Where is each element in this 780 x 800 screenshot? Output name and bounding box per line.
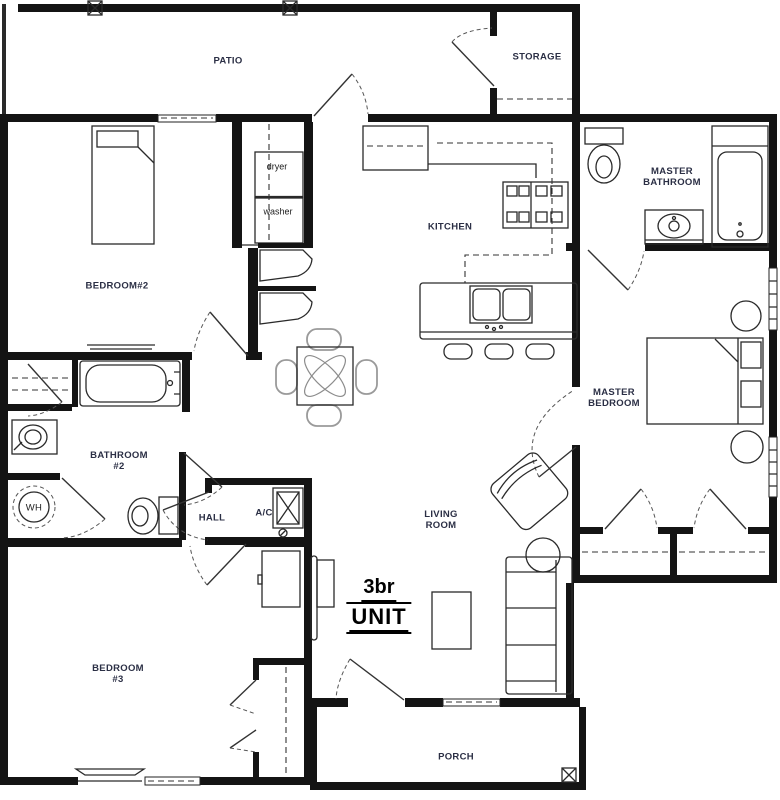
patio-kitchen-door <box>314 74 368 116</box>
ac-unit-icon <box>273 488 303 537</box>
pantry-shelves-icon <box>258 243 316 324</box>
master-bathroom-door <box>588 250 644 290</box>
toilet-icon <box>585 128 623 183</box>
label-hall: HALL <box>199 513 226 524</box>
washer-icon <box>255 198 303 243</box>
master-closet-door-left <box>605 489 657 529</box>
storage-walls <box>490 12 580 114</box>
bar-stool-icon <box>444 344 472 359</box>
label-porch: PORCH <box>438 752 474 763</box>
label-storage: STORAGE <box>513 52 562 63</box>
bedroom3-closet-bifold <box>230 680 256 752</box>
label-master-bathroom: MASTER BATHROOM <box>643 166 701 188</box>
unit-title: 3br UNIT <box>346 574 411 634</box>
pillow-icon <box>741 342 761 368</box>
label-patio: PATIO <box>213 56 242 67</box>
dining-table-icon <box>297 347 353 405</box>
window-bedroom3-1 <box>76 769 144 785</box>
label-washer: washer <box>263 207 292 218</box>
label-bathroom2: BATHROOM #2 <box>90 450 148 472</box>
porch-post-icon <box>562 768 576 782</box>
side-table-icon <box>526 538 560 572</box>
double-sink-icon <box>470 286 532 323</box>
toilet-icon <box>128 497 178 534</box>
dining-set-icon <box>276 329 377 426</box>
sofa-icon <box>506 557 572 694</box>
armchair-icon <box>488 450 571 533</box>
window-patio-wall <box>158 115 216 122</box>
nightstand-icon <box>731 301 761 331</box>
tub-shower-icon <box>712 126 768 247</box>
master-bed-icon <box>647 338 763 424</box>
window-bedroom3-2 <box>145 777 200 785</box>
hall-furniture <box>258 551 334 640</box>
label-wh: WH <box>26 503 42 514</box>
vanity-sink-icon <box>645 210 703 244</box>
counter-edge <box>428 164 536 178</box>
nightstand-icon <box>731 431 763 463</box>
label-dryer: dryer <box>267 162 288 173</box>
refrigerator-icon <box>363 126 428 170</box>
bedroom2-door <box>194 312 248 356</box>
master-closet-door-right <box>694 489 746 529</box>
kitchen-island <box>420 283 577 359</box>
window-master-right-1 <box>769 268 777 330</box>
ac-closet-fixtures <box>273 488 303 537</box>
front-door <box>336 659 404 700</box>
bar-stool-icon <box>526 344 554 359</box>
bar-stool-icon <box>485 344 513 359</box>
window-master-right-2 <box>769 437 777 497</box>
dresser-icon <box>262 551 300 607</box>
living-room-furniture <box>432 450 572 694</box>
label-ac: A/C <box>255 508 272 519</box>
kitchen-fixtures <box>363 126 577 359</box>
laundry-closet <box>255 124 303 246</box>
wh-closet-door <box>62 478 105 538</box>
label-bedroom2: BEDROOM#2 <box>86 281 149 292</box>
chair-icon <box>307 405 341 426</box>
floor-plan: PATIO STORAGE dryer washer BEDROOM#2 KIT… <box>0 0 780 800</box>
window-living-south <box>443 699 500 706</box>
windows <box>76 115 777 785</box>
bedroom2-shelf-icon <box>87 345 155 349</box>
coffee-table-icon <box>432 592 471 649</box>
master-bedroom-door <box>532 390 576 477</box>
sink-icon <box>12 420 57 454</box>
label-living-room: LIVING ROOM <box>424 509 457 531</box>
pillow-icon <box>741 381 761 407</box>
master-bedroom-furniture <box>582 301 766 552</box>
chair-icon <box>356 360 377 394</box>
label-bedroom3: BEDROOM #3 <box>92 663 144 685</box>
storage-door <box>452 28 494 86</box>
bedroom2-closet-shelves <box>12 378 70 390</box>
chair-icon <box>276 360 297 394</box>
stove-icon <box>503 182 568 228</box>
bedroom3-door <box>190 544 246 585</box>
label-master-bedroom: MASTER BEDROOM <box>588 387 640 409</box>
label-kitchen: KITCHEN <box>428 222 472 233</box>
dryer-icon <box>255 152 303 197</box>
bedroom2-bed-icon <box>92 126 154 244</box>
bathtub-icon <box>80 361 180 406</box>
